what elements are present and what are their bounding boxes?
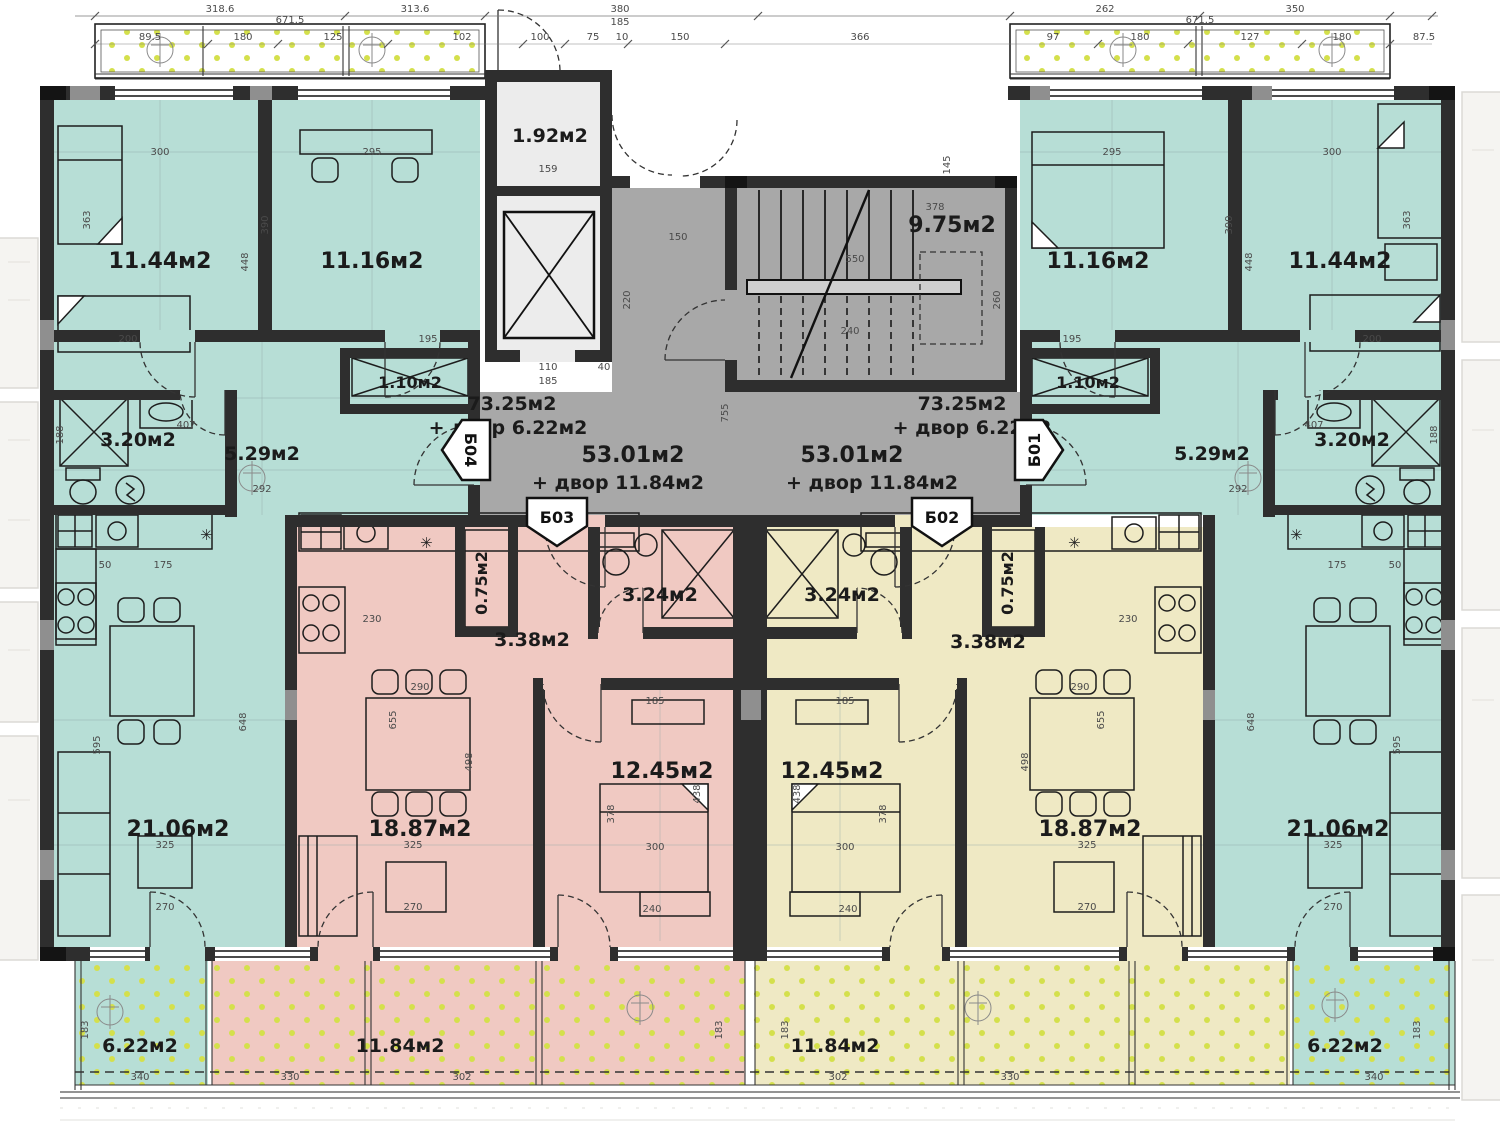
dimension-label: 330 <box>280 1072 299 1083</box>
terrace-label-1184-left: 11.84м2 <box>356 1035 445 1057</box>
dimension-label: 378 <box>606 804 617 823</box>
dimension-label: 655 <box>1096 710 1107 729</box>
dimension-label: 380 <box>610 4 629 15</box>
dimension-label: 220 <box>622 290 633 309</box>
dimension-label: 292 <box>1228 484 1247 495</box>
room-label-975-stairs: 9.75м2 <box>908 213 996 238</box>
dimension-label: 295 <box>1102 147 1121 158</box>
dimension-label: 300 <box>150 147 169 158</box>
floor-plan-canvas: ✳ ✳ <box>0 0 1500 1138</box>
dimension-label: 378 <box>925 202 944 213</box>
dimension-label: 40 <box>598 362 611 373</box>
dimension-label: 180 <box>1130 32 1149 43</box>
dimension-label: 175 <box>153 560 172 571</box>
dimension-label: 498 <box>464 752 475 771</box>
apartment-yard-1184-right: + двор 11.84м2 <box>786 472 958 494</box>
dimension-label: 407 <box>176 420 195 431</box>
svg-text:Б03: Б03 <box>540 508 574 527</box>
dimension-label: 363 <box>82 210 93 229</box>
dimension-label: 188 <box>55 425 66 444</box>
dimension-label: 230 <box>362 614 381 625</box>
dimension-label: 87.5 <box>1413 32 1435 43</box>
dimension-label: 183 <box>714 1020 725 1039</box>
room-label-338-right: 3.38м2 <box>950 631 1026 653</box>
dimension-label: 195 <box>1062 334 1081 345</box>
dimension-label: 318.6 <box>206 4 235 15</box>
dimension-label: 183 <box>780 1020 791 1039</box>
dimension-label: 300 <box>835 842 854 853</box>
dimension-label: 188 <box>1429 425 1440 444</box>
dimension-label: 230 <box>1118 614 1137 625</box>
dimension-label: 550 <box>845 254 864 265</box>
symbol-asterisk: ✳ <box>1068 534 1081 552</box>
dimension-label: 595 <box>1392 735 1403 754</box>
stair-vestibule-floor <box>612 188 725 392</box>
dimension-label: 340 <box>130 1072 149 1083</box>
dimension-label: 292 <box>252 484 271 495</box>
dimension-label: 290 <box>1070 682 1089 693</box>
room-label-324-left: 3.24м2 <box>622 584 698 606</box>
dimension-label: 300 <box>645 842 664 853</box>
dimension-label: 270 <box>155 902 174 913</box>
floor-plan-page: ✳ ✳ <box>0 0 1500 1138</box>
room-label-2106-right: 21.06м2 <box>1287 817 1390 842</box>
room-label-110-right: 1.10м2 <box>1056 373 1120 392</box>
room-label-529-left: 5.29м2 <box>224 443 300 465</box>
dimension-label: 363 <box>1402 210 1413 229</box>
dimension-label: 159 <box>538 164 557 175</box>
dimension-label: 262 <box>1095 4 1114 15</box>
dimension-label: 200 <box>118 334 137 345</box>
dimension-label: 145 <box>942 155 953 174</box>
dimension-label: 127 <box>1240 32 1259 43</box>
apartment-area-5301-left: 53.01м2 <box>582 443 685 468</box>
dimension-label: 180 <box>233 32 252 43</box>
room-label-529-right: 5.29м2 <box>1174 443 1250 465</box>
dimension-label: 330 <box>1000 1072 1019 1083</box>
dimension-label: 300 <box>1322 147 1341 158</box>
room-label-1245-left: 12.45м2 <box>611 759 714 784</box>
terraces-bottom <box>60 961 1460 1098</box>
adjacent-structure-bottom <box>60 1108 1455 1120</box>
terrace-label-622-left: 6.22м2 <box>102 1035 178 1057</box>
dimension-label: 240 <box>642 904 661 915</box>
room-label-2106-left: 21.06м2 <box>127 817 230 842</box>
dimension-label: 302 <box>452 1072 471 1083</box>
apartment-area-7325-left: 73.25м2 <box>468 393 557 415</box>
dimension-label: 110 <box>538 362 557 373</box>
dimension-label: 50 <box>99 560 112 571</box>
dimension-label: 755 <box>720 403 731 422</box>
dimension-label: 366 <box>850 32 869 43</box>
dimension-label: 270 <box>403 902 422 913</box>
room-label-324-right: 3.24м2 <box>804 584 880 606</box>
room-label-320-left: 3.20м2 <box>100 429 176 451</box>
dimension-label: 295 <box>362 147 381 158</box>
dimension-label: 240 <box>838 904 857 915</box>
terrace-label-622-right: 6.22м2 <box>1307 1035 1383 1057</box>
symbol-asterisk: ✳ <box>200 526 213 544</box>
dimension-label: 185 <box>645 696 664 707</box>
dimension-label: 448 <box>240 252 251 271</box>
room-label-075-left: 0.75м2 <box>472 551 491 615</box>
dimension-label: 183 <box>1412 1020 1423 1039</box>
room-label-1245-right: 12.45м2 <box>781 759 884 784</box>
svg-text:Б02: Б02 <box>925 508 959 527</box>
dimension-label: 671.5 <box>1186 15 1215 26</box>
dimension-label: 595 <box>92 735 103 754</box>
symbol-asterisk: ✳ <box>420 534 433 552</box>
svg-text:Б04: Б04 <box>461 433 480 467</box>
dimension-label: 195 <box>418 334 437 345</box>
dimension-label: 185 <box>610 17 629 28</box>
room-label-110-left: 1.10м2 <box>378 373 442 392</box>
room-label-1116-left: 11.16м2 <box>321 249 424 274</box>
dimension-label: 302 <box>828 1072 847 1083</box>
dimension-label: 498 <box>1020 752 1031 771</box>
dimension-label: 671.5 <box>276 15 305 26</box>
dimension-label: 648 <box>1246 712 1257 731</box>
apartment-yard-1184-left: + двор 11.84м2 <box>532 472 704 494</box>
room-label-1887-right: 18.87м2 <box>1039 817 1142 842</box>
dimension-label: 655 <box>388 710 399 729</box>
dimension-label: 240 <box>840 326 859 337</box>
dimension-label: 200 <box>1362 334 1381 345</box>
room-label-1887-left: 18.87м2 <box>369 817 472 842</box>
symbol-asterisk: ✳ <box>1290 526 1303 544</box>
dimension-label: 270 <box>1077 902 1096 913</box>
apartment-area-5301-right: 53.01м2 <box>801 443 904 468</box>
dimension-label: 150 <box>670 32 689 43</box>
room-label-320-right: 3.20м2 <box>1314 429 1390 451</box>
dimension-label: 290 <box>410 682 429 693</box>
dimension-label: 175 <box>1327 560 1346 571</box>
dimension-label: 390 <box>260 215 271 234</box>
dimension-label: 313.6 <box>401 4 430 15</box>
room-label-1144-right: 11.44м2 <box>1289 249 1392 274</box>
dimension-label: 390 <box>1224 215 1235 234</box>
terrace-label-1184-right: 11.84м2 <box>791 1035 880 1057</box>
dimension-label: 448 <box>1244 252 1255 271</box>
dimension-label: 102 <box>452 32 471 43</box>
dimension-label: 438 <box>692 784 703 803</box>
dimension-label: 378 <box>878 804 889 823</box>
dimension-label: 260 <box>992 290 1003 309</box>
dimension-label: 97 <box>1047 32 1060 43</box>
dimension-label: 75 <box>587 32 600 43</box>
apartment-area-7325-right: 73.25м2 <box>918 393 1007 415</box>
svg-text:Б01: Б01 <box>1025 433 1044 467</box>
dimension-label: 50 <box>1389 560 1402 571</box>
dimension-label: 100 <box>530 32 549 43</box>
dimension-label: 270 <box>1323 902 1342 913</box>
dimension-label: 185 <box>538 376 557 387</box>
dimension-label: 340 <box>1364 1072 1383 1083</box>
room-label-1144-left: 11.44м2 <box>109 249 212 274</box>
adjacent-building-right <box>1462 92 1500 1100</box>
dimension-label: 648 <box>238 712 249 731</box>
room-label-1116-right: 11.16м2 <box>1047 249 1150 274</box>
dimension-label: 180 <box>1332 32 1351 43</box>
room-label-192: 1.92м2 <box>512 125 588 147</box>
dimension-label: 350 <box>1285 4 1304 15</box>
dimension-label: 183 <box>80 1020 91 1039</box>
dimension-label: 125 <box>323 32 342 43</box>
room-label-075-right: 0.75м2 <box>998 551 1017 615</box>
dimension-label: 438 <box>792 784 803 803</box>
dimension-label: 185 <box>835 696 854 707</box>
dimension-label: 150 <box>668 232 687 243</box>
room-label-338-left: 3.38м2 <box>494 629 570 651</box>
dimension-label: 10 <box>616 32 629 43</box>
dimension-label: 89.5 <box>139 32 161 43</box>
adjacent-building-left <box>0 238 38 960</box>
